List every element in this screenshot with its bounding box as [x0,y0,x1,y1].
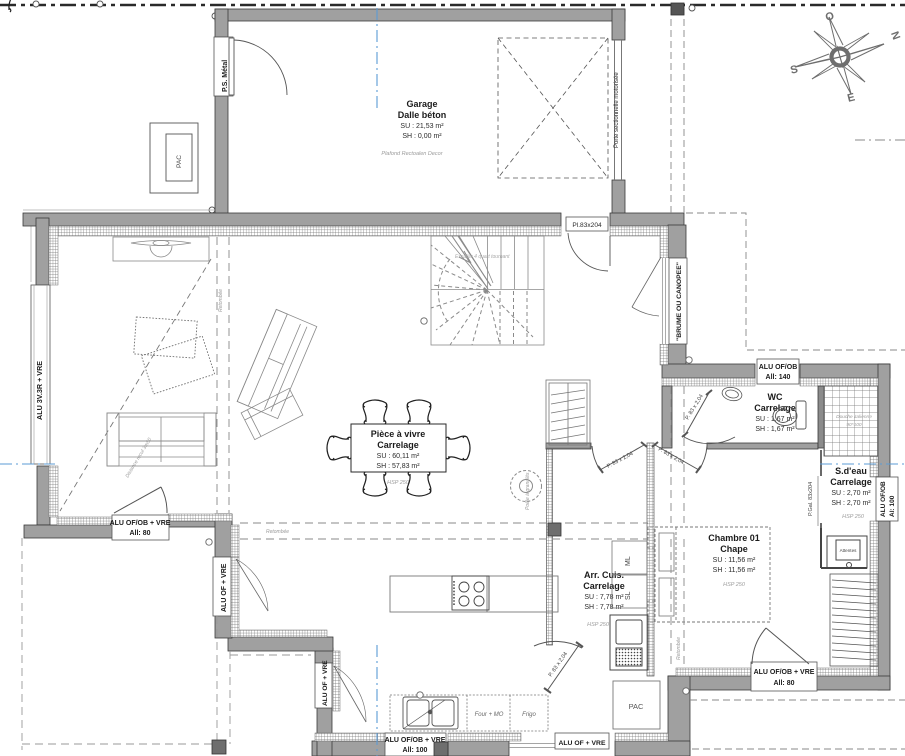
svg-text:Al: 100: Al: 100 [889,495,896,517]
svg-text:Four + MO: Four + MO [475,712,504,718]
svg-text:Retombée: Retombée [266,529,289,535]
svg-text:"BRUME OU CANOPEE": "BRUME OU CANOPEE" [676,262,683,341]
svg-text:SU : 11,56 m²: SU : 11,56 m² [713,557,756,564]
svg-text:Attentes: Attentes [840,548,858,553]
svg-text:All: 100: All: 100 [403,747,428,754]
svg-text:HSP 250: HSP 250 [387,480,410,486]
svg-text:Carrelage: Carrelage [830,477,872,487]
svg-text:SL: SL [625,591,632,600]
svg-text:ALU OF/OB + VRE: ALU OF/OB + VRE [110,520,171,527]
svg-text:SU : 7,78 m²: SU : 7,78 m² [584,594,624,601]
svg-text:HSP 250: HSP 250 [723,582,746,588]
svg-text:Chape: Chape [720,544,748,554]
svg-text:90*100: 90*100 [846,422,862,428]
svg-text:ALU OF/OB + VRE: ALU OF/OB + VRE [754,669,815,676]
svg-text:ALU OF + VRE: ALU OF + VRE [322,660,329,706]
svg-text:Carrelage: Carrelage [754,403,796,413]
svg-text:Frigo: Frigo [522,712,536,718]
svg-text:WC: WC [768,392,783,402]
svg-text:ML: ML [625,556,632,566]
svg-text:SU : 60,11 m²: SU : 60,11 m² [377,453,420,460]
svg-text:Carrelage: Carrelage [377,440,419,450]
svg-text:ALU OF/OB: ALU OF/OB [880,481,887,517]
svg-text:Garage: Garage [406,99,437,109]
svg-text:P.S. Métal: P.S. Métal [222,60,229,92]
svg-text:PAC: PAC [176,155,183,168]
svg-text:Poêle à granulés: Poêle à granulés [525,472,531,510]
svg-text:All: 140: All: 140 [766,374,791,381]
svg-text:ALU 3V.3R + VRE: ALU 3V.3R + VRE [35,361,44,420]
svg-text:Escalier 4 quart tournant: Escalier 4 quart tournant [455,254,510,260]
svg-text:SH : 0,00 m²: SH : 0,00 m² [402,133,442,140]
svg-text:ALU OF + VRE: ALU OF + VRE [221,563,228,612]
svg-text:ALU OF/OB: ALU OF/OB [759,364,798,371]
svg-text:Chambre 01: Chambre 01 [708,533,760,543]
svg-text:HSP 250: HSP 250 [842,514,865,520]
svg-text:Retombée: Retombée [676,637,682,660]
svg-text:SH : 11,56 m²: SH : 11,56 m² [713,567,756,574]
svg-text:PAC: PAC [629,702,644,711]
svg-text:Retombée: Retombée [218,289,224,312]
svg-text:SH : 7,78 m²: SH : 7,78 m² [584,604,624,611]
svg-text:Pl.83x204: Pl.83x204 [572,222,602,229]
svg-text:S.d'eau: S.d'eau [835,466,867,476]
svg-text:All: 80: All: 80 [129,530,150,537]
svg-text:HSP 250: HSP 250 [587,622,610,628]
svg-text:SU : 21,53 m²: SU : 21,53 m² [400,123,444,130]
svg-text:Plafond Rectoalen Decor: Plafond Rectoalen Decor [381,151,443,157]
svg-text:Carrelage: Carrelage [583,581,625,591]
svg-text:Dalle béton: Dalle béton [398,110,447,120]
svg-text:SH : 57,83 m²: SH : 57,83 m² [376,463,420,470]
svg-text:Douche italienne: Douche italienne [836,414,872,420]
svg-text:All: 80: All: 80 [773,680,794,687]
svg-text:ALU OF + VRE: ALU OF + VRE [558,740,605,747]
svg-text:P.Gal. 83x204: P.Gal. 83x204 [808,482,814,516]
svg-text:Pièce à vivre: Pièce à vivre [371,429,426,439]
svg-text:SH : 2,70 m²: SH : 2,70 m² [831,500,871,507]
svg-text:SU : 2,70 m²: SU : 2,70 m² [831,490,871,497]
svg-text:Porte sectionnelle motorisée: Porte sectionnelle motorisée [614,72,620,148]
svg-text:SH : 1,67 m²: SH : 1,67 m² [755,426,795,433]
